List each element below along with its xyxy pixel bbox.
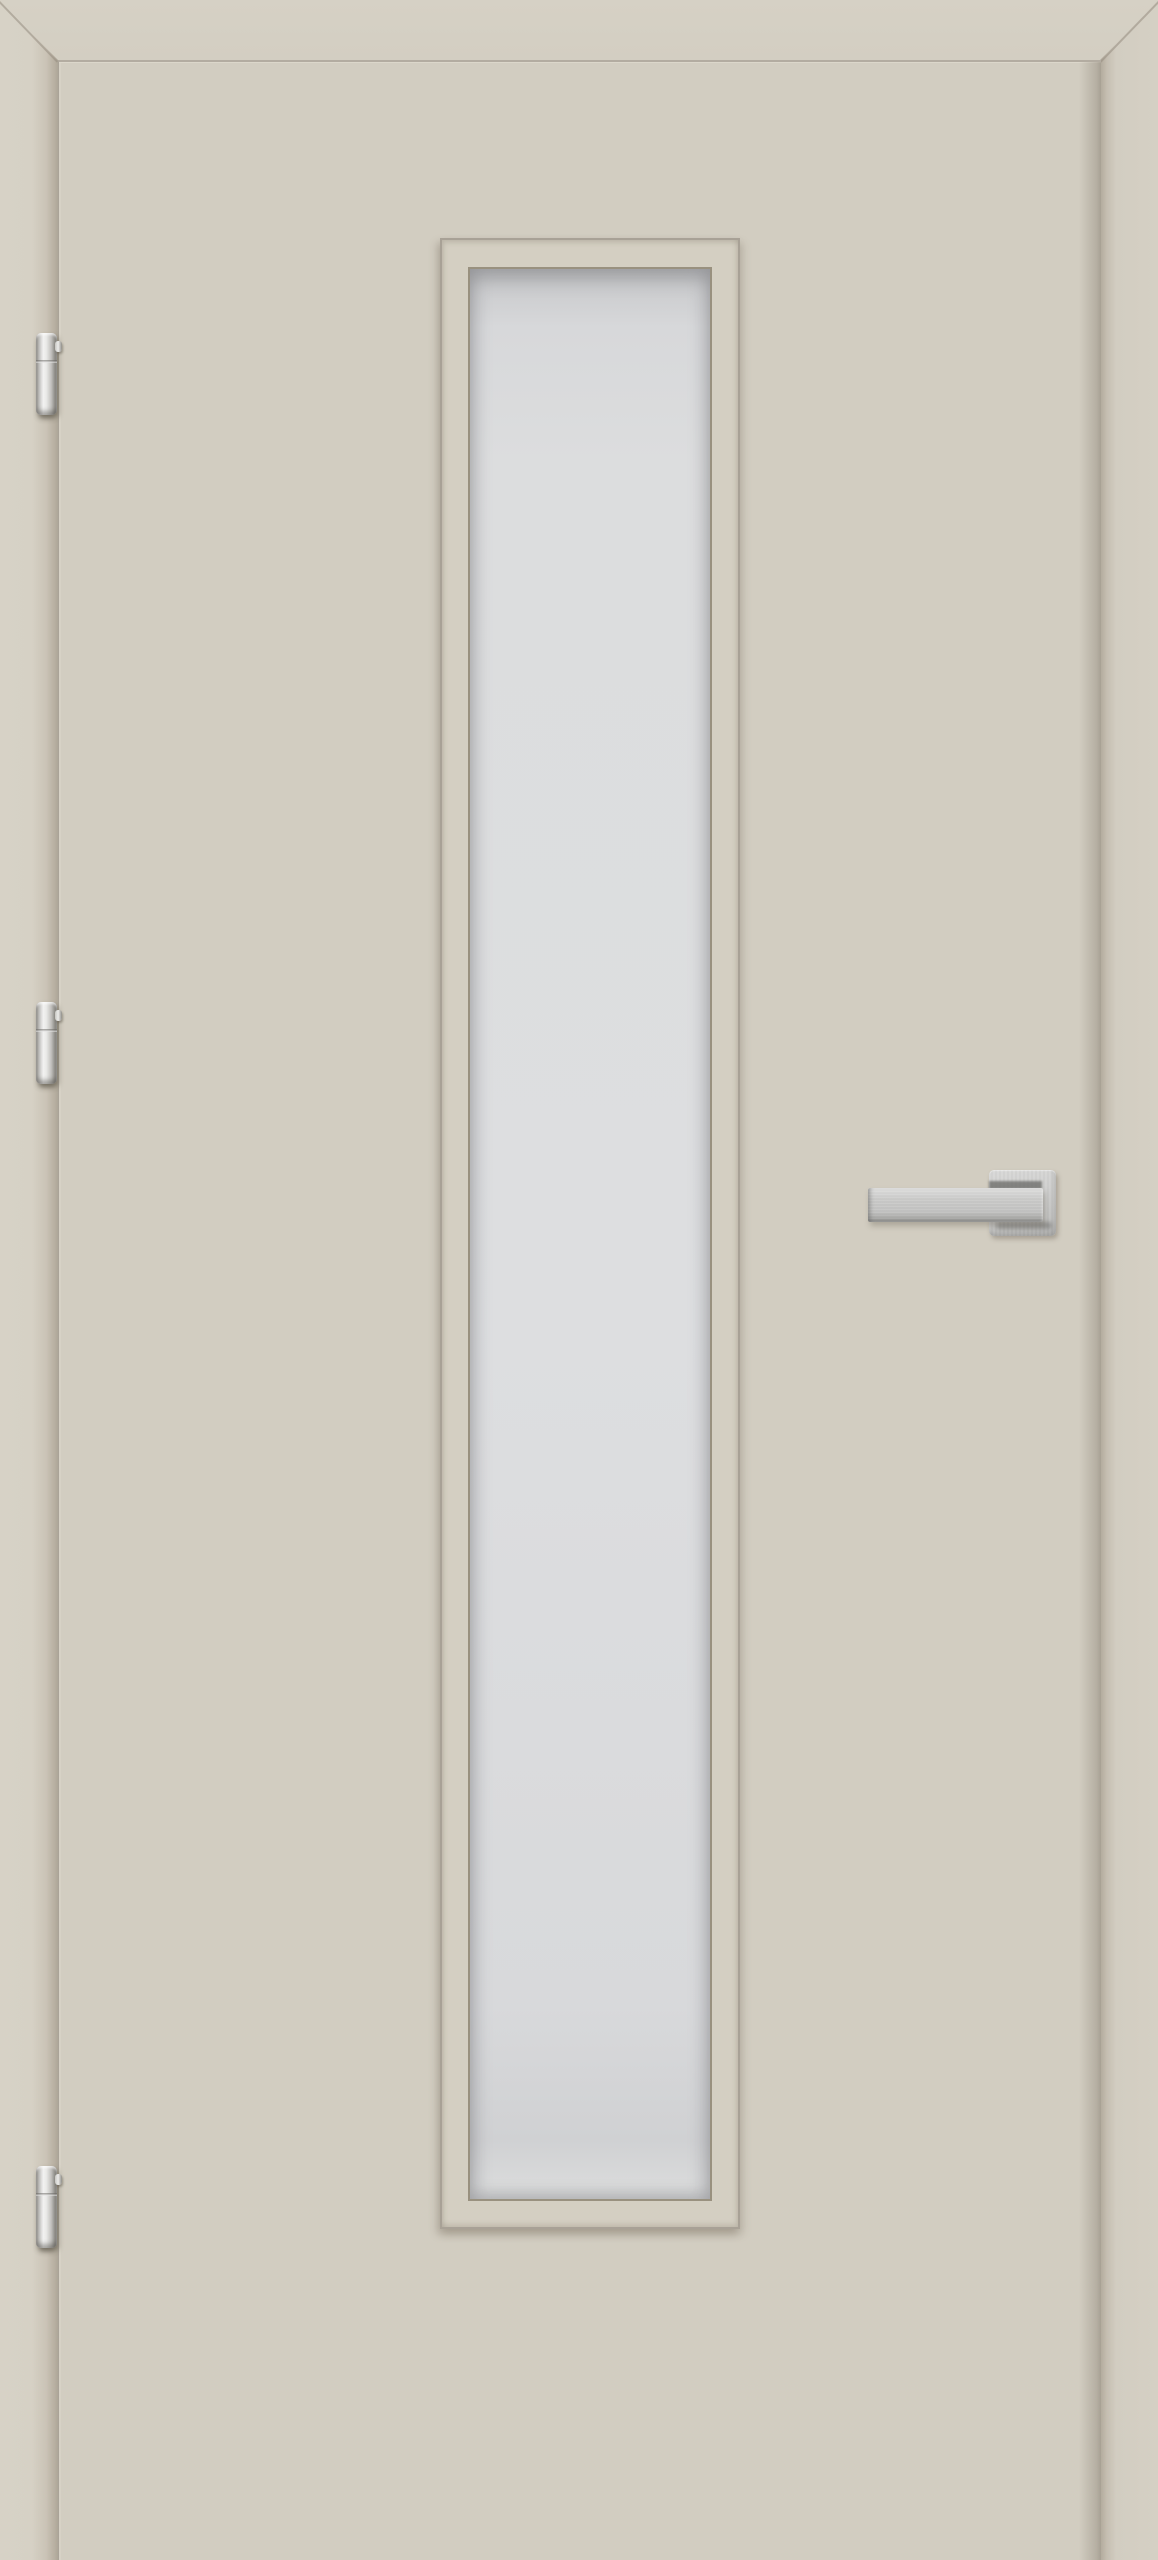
hinge-middle — [36, 1002, 57, 1084]
hinge-top — [36, 333, 57, 415]
door-frame-right-casing — [1100, 0, 1158, 2560]
hinge-pin-knob — [55, 1010, 62, 1021]
glass-pane — [468, 267, 712, 2201]
handle-under-shadow — [996, 1222, 1052, 1229]
door-frame-top-casing — [0, 0, 1158, 60]
hinge-pin-knob — [55, 341, 62, 352]
hinge-pin-knob — [55, 2174, 62, 2185]
handle-lever — [868, 1188, 1043, 1222]
hinge-bottom — [36, 2166, 57, 2248]
glazing-frame — [440, 238, 740, 2229]
door-product-photo — [0, 0, 1158, 2560]
